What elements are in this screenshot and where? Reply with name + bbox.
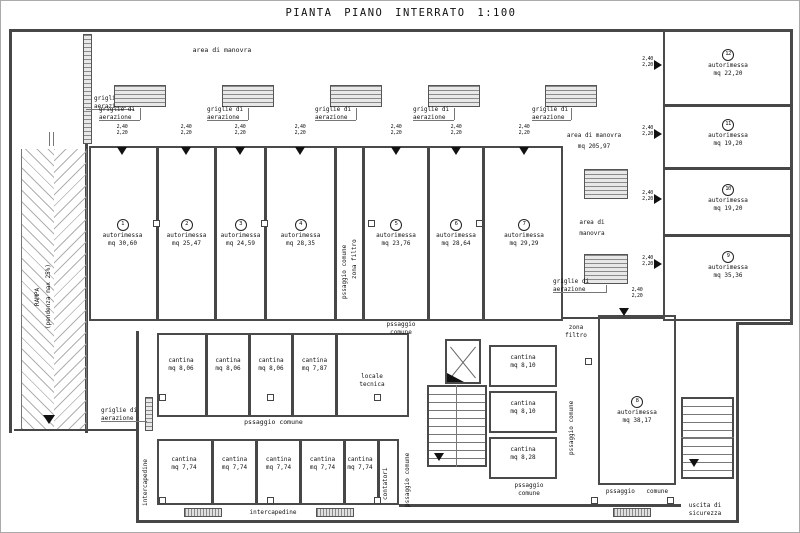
ramp-slope-label: (pendenza max 25%) xyxy=(45,219,52,329)
door-dimension: 2,40 2,20 xyxy=(290,125,310,137)
lobby-label: pssaggio comune xyxy=(378,321,424,337)
cantina-area: mq 8,06 xyxy=(157,365,205,373)
wall-cantina xyxy=(248,335,251,415)
garage-12-label: 12 autorimessa mq 22,20 xyxy=(663,49,793,78)
wall-right-lower xyxy=(736,322,739,523)
garage-8-number: 8 xyxy=(631,396,643,408)
garage-8-corridor-label: pssaggio comune xyxy=(598,488,676,496)
zona-filtro-line1: zona xyxy=(559,324,593,332)
vent-grille xyxy=(316,508,354,517)
page-title: PIANTA PIANO INTERRATO 1:100 xyxy=(1,7,800,21)
garage-5-name: autorimessa xyxy=(365,232,427,240)
door-dimension: 2,40 2,20 xyxy=(514,125,534,137)
cantina-name: cantina xyxy=(157,357,205,365)
stairs-down-arrow-icon xyxy=(434,453,444,461)
pillar xyxy=(368,220,375,227)
garage-12-area: mq 22,20 xyxy=(663,70,793,78)
garage-door-arrow-icon xyxy=(235,147,245,155)
vent-grille xyxy=(184,508,222,517)
garage-3-label: 3 autorimessa mq 24,59 xyxy=(217,219,264,248)
cantina-area: mq 8,28 xyxy=(489,454,557,462)
cantina-area: mq 8,06 xyxy=(208,365,248,373)
cantina-area: mq 7,74 xyxy=(302,464,343,472)
garage-10-area: mq 19,20 xyxy=(663,205,793,213)
vent-grille xyxy=(222,85,274,107)
garage-6-area: mq 28,64 xyxy=(430,240,482,248)
vent-grille xyxy=(114,85,166,107)
grille-leader-line xyxy=(356,108,357,120)
locale-tecnica-label: locale tecnica xyxy=(335,373,409,389)
pillar xyxy=(153,220,160,227)
wall-cantina xyxy=(255,441,258,503)
lobby-label-line1: pssaggio xyxy=(378,321,424,329)
grille-leader-line xyxy=(99,120,140,121)
door-box xyxy=(159,394,166,401)
garage-6-name: autorimessa xyxy=(430,232,482,240)
grille-leader-line xyxy=(413,120,454,121)
garage-4-label: 4 autorimessa mq 28,35 xyxy=(267,219,334,248)
door-dimension: 2,40 2,20 xyxy=(230,125,250,137)
vent-grille xyxy=(613,508,651,517)
passaggio-vertical-center: pssaggio comune xyxy=(404,425,411,507)
garage-7-name: autorimessa xyxy=(485,232,563,240)
garage-door-arrow-icon xyxy=(654,194,662,204)
garage-9-area: mq 35,36 xyxy=(663,272,793,280)
cantina-label: cantina mq 8,06 xyxy=(208,357,248,373)
door-box xyxy=(585,358,592,365)
grille-leader-line xyxy=(454,108,455,120)
grille-leader-line xyxy=(140,108,141,120)
wall-cantina xyxy=(343,441,346,503)
garage-door-arrow-icon xyxy=(619,308,629,316)
door-box xyxy=(267,497,274,504)
garage-11-label: 11 autorimessa mq 19,20 xyxy=(663,119,793,148)
door-dimension: 2,40 2,20 xyxy=(386,125,406,137)
cantina-area: mq 8,10 xyxy=(489,362,557,370)
garage-2-area: mq 25,47 xyxy=(159,240,214,248)
grille-leader-line xyxy=(101,421,147,422)
garage-1-name: autorimessa xyxy=(89,232,156,240)
garage-door-arrow-icon xyxy=(654,129,662,139)
grille-leader-line xyxy=(315,120,356,121)
wall-bottom xyxy=(136,520,738,523)
cantina-name: cantina xyxy=(302,456,343,464)
door-dimension: 2,40 2,20 xyxy=(635,256,653,268)
vent-grille xyxy=(83,34,92,144)
door-box xyxy=(667,497,674,504)
garage-3-name: autorimessa xyxy=(217,232,264,240)
door-height: 2,20 xyxy=(230,131,250,137)
wall-garage xyxy=(663,104,793,107)
garage-5-area: mq 23,76 xyxy=(365,240,427,248)
grille-label-line1: griglie di xyxy=(99,106,139,114)
ramp-hatch-right xyxy=(54,149,86,429)
grille-label-line1: griglie di xyxy=(315,106,355,114)
garage-door-arrow-icon xyxy=(451,147,461,155)
garage-3-number: 3 xyxy=(235,219,247,231)
ramp-direction-arrow-icon xyxy=(43,415,55,424)
garage-9-label: 9 autorimessa mq 35,36 xyxy=(663,251,793,280)
garage-door-arrow-icon xyxy=(654,60,662,70)
cantina-name: cantina xyxy=(489,446,557,454)
corridor-label-line2: comune xyxy=(503,490,555,498)
garage-1-label: 1 autorimessa mq 30,60 xyxy=(89,219,156,248)
garage-10-label: 10 autorimessa mq 19,20 xyxy=(663,184,793,213)
door-height: 2,20 xyxy=(176,131,196,137)
grille-leader-line xyxy=(606,285,607,293)
zona-filtro-line2: filtro xyxy=(559,332,593,340)
vent-grille xyxy=(428,85,480,107)
garage-1-number: 1 xyxy=(117,219,129,231)
door-box xyxy=(159,497,166,504)
lobby-label-line2: comune xyxy=(378,329,424,337)
cantina-label: cantina mq 8,10 xyxy=(489,400,557,416)
garage-7-area: mq 29,29 xyxy=(485,240,563,248)
door-height: 2,20 xyxy=(446,131,466,137)
garage-door-arrow-icon xyxy=(519,147,529,155)
garage-corridor-label-1: pssaggio comune xyxy=(341,189,348,299)
wall-ramp-bottom xyxy=(14,429,139,431)
garage-corridor-label-2: zona filtro xyxy=(351,209,358,279)
cantina-label: cantina mq 8,10 xyxy=(489,354,557,370)
door-box xyxy=(374,394,381,401)
cantina-name: cantina xyxy=(258,456,299,464)
cantina-area: mq 8,10 xyxy=(489,408,557,416)
cantina-label: cantina mq 7,74 xyxy=(258,456,299,472)
stairs-down-arrow-icon xyxy=(689,459,699,467)
vent-grille xyxy=(330,85,382,107)
cantina-label: cantina mq 7,74 xyxy=(157,456,211,472)
grille-label-line1: griglie di xyxy=(207,106,247,114)
garage-7-label: 7 autorimessa mq 29,29 xyxy=(485,219,563,248)
wall-cantina xyxy=(299,441,302,503)
cantina-lower-block xyxy=(157,439,399,505)
wall-garage xyxy=(663,167,793,170)
door-dimension: 2,40 2,20 xyxy=(176,125,196,137)
door-height: 2,20 xyxy=(628,294,646,300)
door-height: 2,20 xyxy=(290,131,310,137)
wall-left xyxy=(9,29,12,433)
area-manovra-mq-label-2: mq 205,97 xyxy=(554,143,634,151)
grille-label-line1: griglie di xyxy=(413,106,453,114)
cantina-name: cantina xyxy=(208,357,248,365)
wall-right-step xyxy=(736,322,793,325)
door-height: 2,20 xyxy=(112,131,132,137)
garage-1-area: mq 30,60 xyxy=(89,240,156,248)
door-dimension: 2,40 2,20 xyxy=(112,125,132,137)
cantina-area: mq 8,06 xyxy=(251,365,291,373)
pillar xyxy=(476,220,483,227)
cantina-area: mq 7,74 xyxy=(343,464,377,472)
uscita-line1: uscita di xyxy=(683,502,727,510)
cantina-name: cantina xyxy=(489,354,557,362)
stairs-center-line xyxy=(681,437,734,438)
cantina-label: cantina mq 7,87 xyxy=(294,357,335,373)
intercapedine-bottom-label: intercapedine xyxy=(244,509,302,517)
ramp-label: RAMPA xyxy=(34,236,41,306)
ramp-gate-tick xyxy=(53,132,54,146)
cantina-area: mq 7,74 xyxy=(214,464,255,472)
cantina-name: cantina xyxy=(251,357,291,365)
zona-filtro-label: zona filtro xyxy=(559,324,593,340)
area-manovra-mq-label-1: area di manovra xyxy=(554,132,634,140)
grille-leader-line xyxy=(553,292,606,293)
garage-12-number: 12 xyxy=(722,49,734,61)
garage-4-area: mq 28,35 xyxy=(267,240,334,248)
locale-tecnica-line1: locale xyxy=(335,373,409,381)
wall-cantina xyxy=(205,335,208,415)
door-height: 2,20 xyxy=(635,262,653,268)
cantina-area: mq 7,87 xyxy=(294,365,335,373)
garage-door-arrow-icon xyxy=(117,147,127,155)
intercapedine-left-label: intercapedine xyxy=(142,444,149,506)
door-box xyxy=(267,394,274,401)
cantina-label: cantina mq 7,74 xyxy=(343,456,377,472)
garage-10-name: autorimessa xyxy=(663,197,793,205)
corridor-label: pssaggio comune xyxy=(221,418,326,426)
vent-grille xyxy=(584,169,628,199)
ramp-gate-tick xyxy=(49,132,50,146)
garage-2-label: 2 autorimessa mq 25,47 xyxy=(159,219,214,248)
garage-6-number: 6 xyxy=(450,219,462,231)
grille-label-line1: griglie di xyxy=(532,106,572,114)
door-height: 2,20 xyxy=(514,131,534,137)
door-box xyxy=(374,497,381,504)
garage-door-arrow-icon xyxy=(391,147,401,155)
garage-5-number: 5 xyxy=(390,219,402,231)
cantina-area: mq 7,74 xyxy=(157,464,211,472)
garage-11-number: 11 xyxy=(722,119,734,131)
door-height: 2,20 xyxy=(635,63,653,69)
uscita-sicurezza-label: uscita di sicurezza xyxy=(683,502,727,518)
wall-garage xyxy=(334,148,337,319)
garage-11-area: mq 19,20 xyxy=(663,140,793,148)
uscita-line2: sicurezza xyxy=(683,510,727,518)
door-dimension: 2,40 2,20 xyxy=(635,57,653,69)
stairs-center-line xyxy=(456,385,457,467)
area-manovra-top-label: area di manovra xyxy=(182,46,262,54)
cantina-label: cantina mq 7,74 xyxy=(214,456,255,472)
grille-leader-line xyxy=(532,120,571,121)
garage-7-number: 7 xyxy=(518,219,530,231)
door-dimension: 2,40 2,20 xyxy=(635,191,653,203)
door-height: 2,20 xyxy=(635,197,653,203)
wall-cantina xyxy=(377,441,380,503)
garage-2-name: autorimessa xyxy=(159,232,214,240)
grille-label-line1: griglie di xyxy=(553,278,593,286)
wall-cantina xyxy=(211,441,214,503)
corridor-label-south: pssaggio comune xyxy=(503,482,555,498)
garage-4-name: autorimessa xyxy=(267,232,334,240)
door-box xyxy=(591,497,598,504)
door-dimension: 2,40 2,20 xyxy=(628,288,646,300)
door-height: 2,20 xyxy=(386,131,406,137)
cantina-name: cantina xyxy=(157,456,211,464)
garage-9-name: autorimessa xyxy=(663,264,793,272)
vent-grille xyxy=(145,397,153,431)
garage-3-area: mq 24,59 xyxy=(217,240,264,248)
cantina-name: cantina xyxy=(214,456,255,464)
garage-10-number: 10 xyxy=(722,184,734,196)
garage-6-label: 6 autorimessa mq 28,64 xyxy=(430,219,482,248)
garage-12-name: autorimessa xyxy=(663,62,793,70)
vent-grille xyxy=(545,85,597,107)
cantina-name: cantina xyxy=(343,456,377,464)
area-manovra-small-label-1: area di xyxy=(557,219,627,227)
garage-2-number: 2 xyxy=(181,219,193,231)
contatori-label: contatori xyxy=(382,448,389,500)
cantina-label: cantina mq 8,06 xyxy=(251,357,291,373)
garage-8-area: mq 38,17 xyxy=(598,417,676,425)
ramp xyxy=(21,149,87,429)
door-dimension: 2,40 2,20 xyxy=(635,126,653,138)
cantina-label: cantina mq 8,28 xyxy=(489,446,557,462)
cantina-area: mq 7,74 xyxy=(258,464,299,472)
grille-leader-line xyxy=(248,108,249,120)
passaggio-vertical-right: pssaggio comune xyxy=(568,373,575,455)
garage-door-arrow-icon xyxy=(654,259,662,269)
grille-leader-line xyxy=(207,120,248,121)
wall-inner-bottom xyxy=(399,504,681,507)
wall-garage xyxy=(663,234,793,237)
garage-8-name: autorimessa xyxy=(598,409,676,417)
cantina-name: cantina xyxy=(294,357,335,365)
door-dimension: 2,40 2,20 xyxy=(446,125,466,137)
garage-8-label: 8 autorimessa mq 38,17 xyxy=(598,396,676,425)
pillar xyxy=(261,220,268,227)
garage-door-arrow-icon xyxy=(181,147,191,155)
cantina-label: cantina mq 7,74 xyxy=(302,456,343,472)
area-manovra-small-label-2: manovra xyxy=(557,230,627,238)
grille-label-line1: griglie di xyxy=(101,407,143,415)
cantina-label: cantina mq 8,06 xyxy=(157,357,205,373)
cantina-name: cantina xyxy=(489,400,557,408)
garage-4-number: 4 xyxy=(295,219,307,231)
garage-11-name: autorimessa xyxy=(663,132,793,140)
wall-cantina xyxy=(291,335,294,415)
garage-door-arrow-icon xyxy=(295,147,305,155)
grille-leader-line xyxy=(571,108,572,120)
garage-9-number: 9 xyxy=(722,251,734,263)
wall-left-lower xyxy=(136,331,139,523)
locale-tecnica-line2: tecnica xyxy=(335,381,409,389)
corridor-label-line1: pssaggio xyxy=(503,482,555,490)
elevator-door-wedge-icon xyxy=(447,373,464,382)
floor-plan: PIANTA PIANO INTERRATO 1:100 RAMPA (pend… xyxy=(0,0,800,533)
door-height: 2,20 xyxy=(635,132,653,138)
